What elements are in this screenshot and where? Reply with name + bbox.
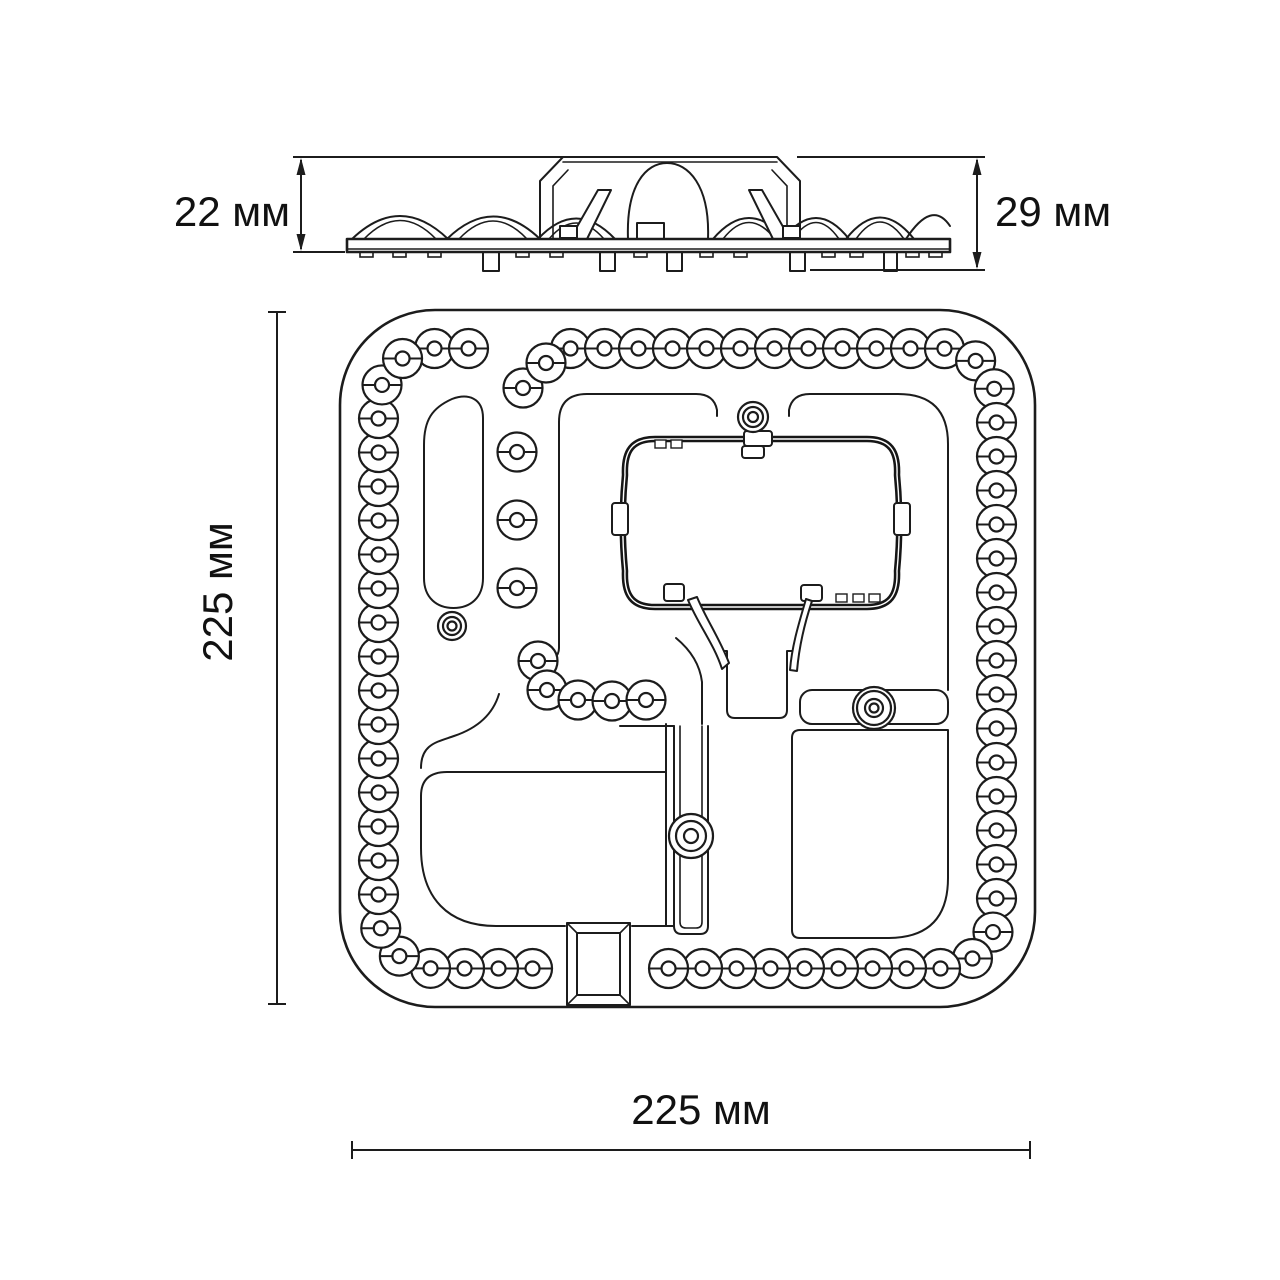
- module-board-outline: [340, 310, 1035, 1007]
- arrowhead-down-icon: [297, 234, 306, 251]
- mount-hole: [438, 612, 466, 640]
- wire-shaft: [720, 651, 794, 718]
- led-lens: [527, 344, 566, 383]
- oval-slot: [424, 397, 483, 608]
- frame-bottom-tab-left: [664, 584, 684, 601]
- side-view: [347, 157, 950, 271]
- led-lens: [498, 569, 537, 608]
- hole-bracket-tab: [742, 446, 764, 458]
- led-lens: [498, 433, 537, 472]
- dimension-height-225mm: 225 мм: [194, 312, 286, 1004]
- dimension-label-top-width: 225 мм: [631, 1086, 771, 1133]
- mount-hole: [738, 402, 768, 432]
- side-pins: [360, 252, 942, 271]
- top-dimensions: 225 мм 225 мм: [194, 312, 1030, 1159]
- arrowhead-up-icon: [297, 158, 306, 175]
- led-lens: [627, 681, 666, 720]
- dimension-label-side-right: 29 мм: [995, 188, 1111, 235]
- arrowhead-down-icon: [973, 252, 982, 269]
- dimension-label-side-left: 22 мм: [174, 188, 290, 235]
- led-lens: [449, 329, 488, 368]
- mount-hole: [669, 814, 713, 858]
- frame-left-clip: [612, 503, 628, 535]
- frame-top-tab: [744, 431, 772, 446]
- led-lens: [383, 339, 422, 378]
- led-lens: [498, 501, 537, 540]
- driver-frame: [612, 431, 910, 671]
- top-view: [340, 310, 1035, 1007]
- led-ring: [359, 329, 1016, 988]
- led-singles: [498, 344, 666, 721]
- frame-latch-notches: [655, 440, 880, 602]
- dimension-width-225mm: 225 мм: [352, 1086, 1030, 1159]
- arrowhead-up-icon: [973, 158, 982, 175]
- side-board: [347, 239, 950, 252]
- frame-bottom-tab-right: [801, 585, 822, 601]
- connector-socket: [567, 923, 630, 1005]
- led-lens: [649, 949, 688, 988]
- frame-right-clip: [894, 503, 910, 535]
- led-module-drawing: 22 мм 29 мм: [0, 0, 1280, 1280]
- technical-drawing-page: 22 мм 29 мм: [0, 0, 1280, 1280]
- dimension-label-top-height: 225 мм: [194, 522, 241, 662]
- right-plateau: [792, 730, 948, 938]
- mount-hole: [853, 687, 895, 729]
